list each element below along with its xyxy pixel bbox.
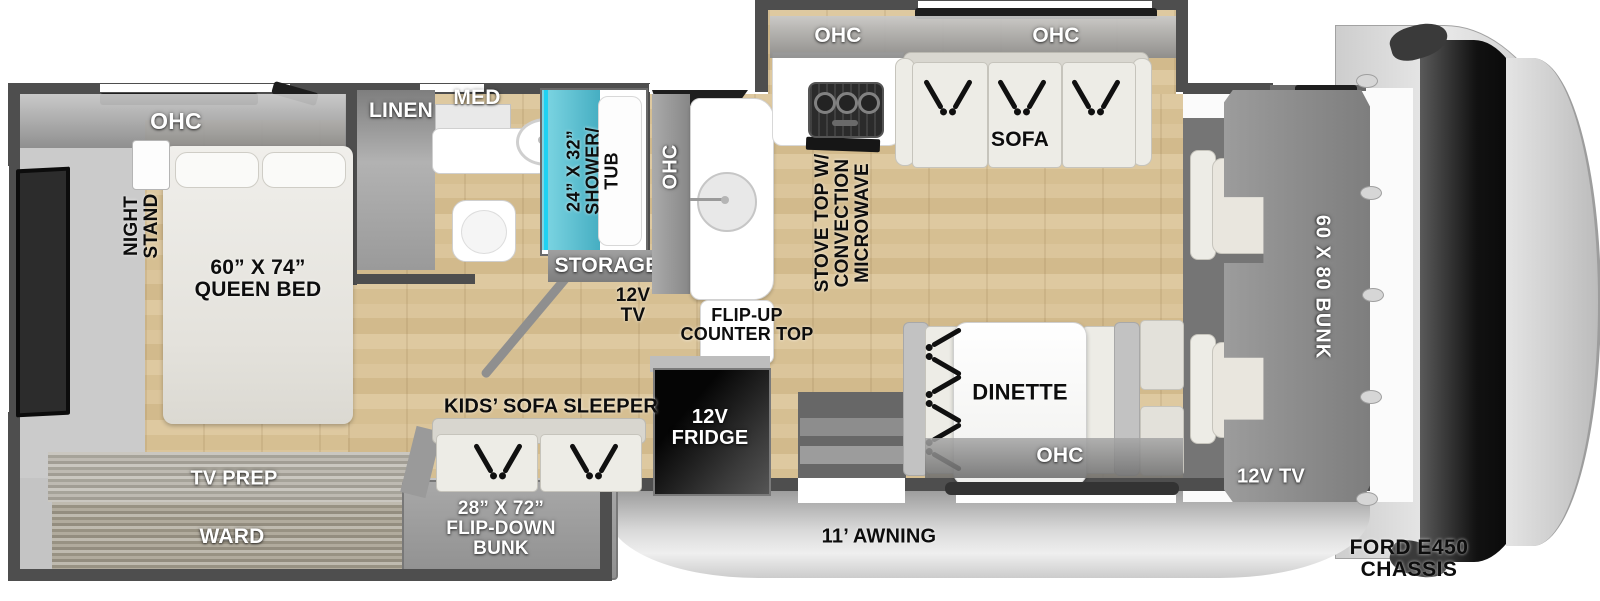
dinette-side-cushion-1	[1140, 320, 1184, 390]
entry-door-opening	[798, 478, 905, 503]
kitchen-drain-icon	[721, 196, 729, 204]
kids-sofa-label: KIDS’ SOFA SLEEPER	[444, 397, 658, 418]
stove-ohc-label: OHC	[814, 25, 861, 47]
seatbelt-icon	[566, 440, 622, 484]
storage-label: STORAGE	[555, 255, 660, 277]
med-label: MED	[453, 87, 500, 109]
sofa-slide-window	[918, 1, 1152, 8]
body-rivet-icon	[1360, 186, 1382, 200]
seatbelt-icon	[1068, 76, 1124, 120]
cabover-bunk	[1224, 90, 1370, 502]
ward-label: WARD	[200, 526, 265, 548]
body-rivet-icon	[1356, 492, 1378, 506]
stove-burner-1-icon	[814, 92, 836, 114]
awning-label: 11’ AWNING	[822, 527, 937, 548]
entry-step-tread-2	[800, 446, 904, 464]
stove-knobs-icon	[832, 120, 858, 126]
cab-front-cap	[1506, 58, 1600, 546]
bed-pillow-left	[175, 152, 259, 188]
bedroom-tv	[16, 167, 70, 418]
bunk-label: 60 X 80 BUNK	[1312, 215, 1333, 359]
shower-label: 24” X 32” SHOWER/ TUB	[565, 127, 622, 214]
tv-prep-label: TV PREP	[191, 469, 278, 490]
dinette-slide-topper	[945, 482, 1179, 495]
seatbelt-icon	[920, 76, 976, 120]
dinette-slide-window	[956, 495, 1176, 503]
flip-down-bunk-label: 28” X 72” FLIP-DOWN BUNK	[446, 499, 555, 559]
seatbelt-icon	[994, 76, 1050, 120]
queen-bed-label: 60” X 74” QUEEN BED	[195, 257, 322, 301]
body-rivet-icon	[1356, 74, 1378, 88]
dinette-label: DINETTE	[972, 380, 1068, 403]
night-stand	[132, 140, 170, 190]
linen-label: LINEN	[369, 100, 433, 122]
seatbelt-icon	[470, 440, 526, 484]
stove-burner-3-icon	[858, 92, 880, 114]
top-slide-left-wall	[755, 0, 768, 92]
entry-step-tread-1	[800, 418, 904, 436]
floorplan-canvas: 11’ AWNING TV PREP WARD 28” X 72” FLIP-D…	[0, 0, 1600, 601]
toilet-bowl-icon	[461, 210, 507, 254]
sofa-ohc-label: OHC	[1032, 25, 1079, 47]
bottom-slide-right-wall	[600, 478, 612, 581]
fridge-label: 12V FRIDGE	[672, 407, 749, 449]
stove-label: STOVE TOP W/ CONVECTION MICROWAVE	[813, 154, 873, 293]
body-rivet-icon	[1360, 390, 1382, 404]
bath-tv-label: 12V TV	[616, 286, 650, 326]
stove-counter-edge	[806, 137, 880, 153]
cab-tv-label: 12V TV	[1237, 467, 1305, 488]
bedroom-window	[100, 84, 290, 92]
rear-left-window	[2, 166, 9, 412]
night-stand-label: NIGHT STAND	[122, 193, 162, 258]
awning	[608, 490, 1370, 578]
flip-up-counter-label: FLIP-UP COUNTER TOP	[681, 306, 814, 344]
stove-burner-2-icon	[836, 92, 858, 114]
kitchen-ohc-label: OHC	[661, 144, 682, 189]
top-slide-right-wall	[1176, 0, 1188, 92]
dinette-ohc-label: OHC	[1036, 445, 1083, 467]
sofa-label: SOFA	[991, 129, 1049, 151]
bed-pillow-right	[262, 152, 346, 188]
bath-bottom-wall	[345, 274, 475, 284]
shower-door-track	[544, 90, 548, 250]
kitchen-ohc-cabinet	[652, 94, 690, 294]
body-rivet-icon	[1362, 288, 1384, 302]
bedroom-ohc-label: OHC	[150, 109, 202, 133]
chassis-label: FORD E450 CHASSIS	[1314, 537, 1505, 581]
bottom-slide-bottom-wall	[8, 569, 612, 581]
